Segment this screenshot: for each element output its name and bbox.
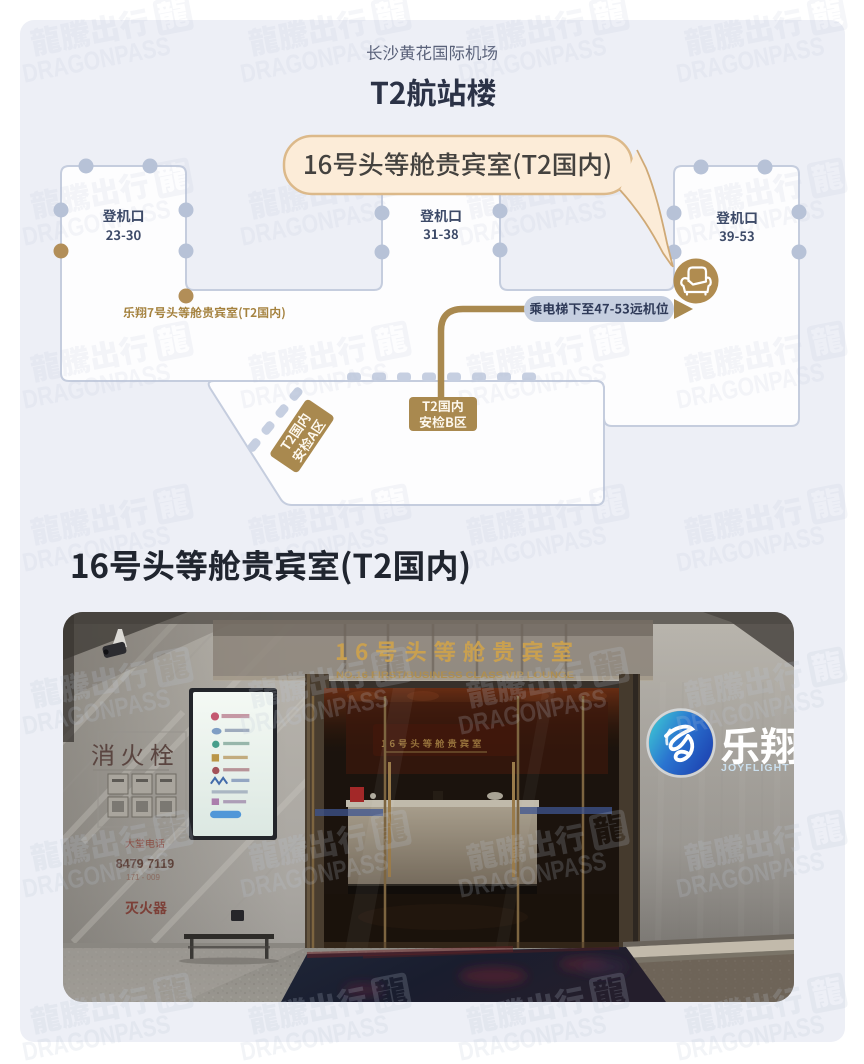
svg-text:JOYFLIGHT: JOYFLIGHT — [721, 762, 790, 774]
